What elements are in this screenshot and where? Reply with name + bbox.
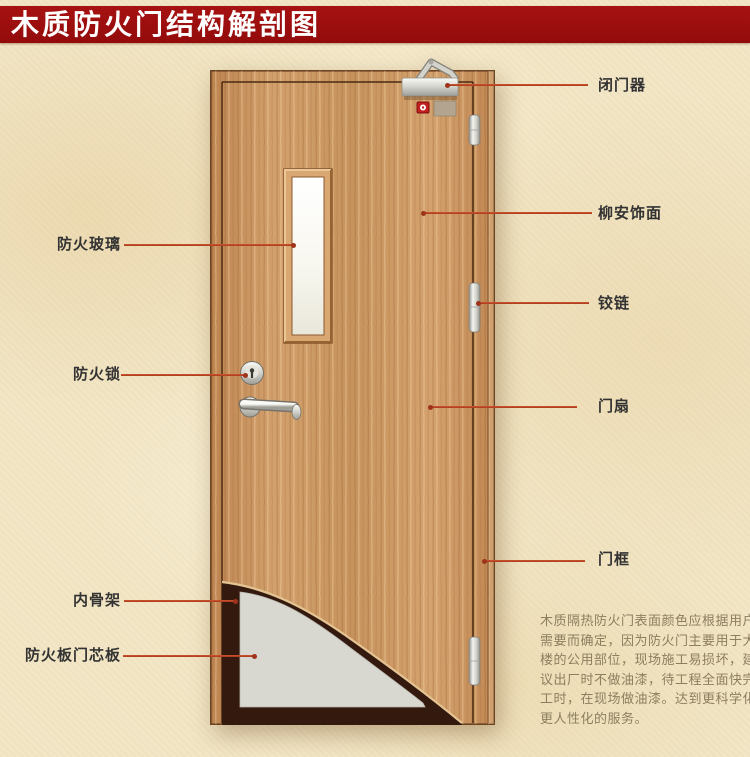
pointer-line-veneer (423, 212, 592, 214)
description-line: 更人性化的服务。 (540, 709, 740, 729)
description-text: 木质隔热防火门表面颜色应根据用户 需要而确定，因为防火门主要用于大 楼的公用部位… (540, 611, 740, 728)
pointer-dot (243, 373, 248, 378)
pointer-line-door-frame (484, 560, 585, 562)
pointer-dot (482, 559, 487, 564)
label-fire-lock: 防火锁 (73, 366, 121, 384)
page-title: 木质防火门结构解剖图 (0, 6, 750, 43)
description-line: 工时，在现场做油漆。达到更科学化 (540, 689, 740, 709)
door-closer-illustration (402, 60, 458, 100)
title-banner: 木质防火门结构解剖图 (0, 6, 750, 43)
pointer-line-inner-frame (124, 600, 236, 602)
label-core-board: 防火板门芯板 (25, 647, 121, 665)
pointer-dot (476, 301, 481, 306)
pointer-dot (428, 405, 433, 410)
description-line: 木质隔热防火门表面颜色应根据用户 (540, 611, 740, 631)
label-inner-frame: 内骨架 (73, 592, 121, 610)
pointer-line-fire-lock (121, 374, 246, 376)
pointer-line-core-board (123, 655, 255, 657)
pointer-dot (291, 243, 296, 248)
description-line: 楼的公用部位，现场施工易损坏，建 (540, 650, 740, 670)
fire-glass-window (284, 169, 332, 343)
description-line: 需要而确定，因为防火门主要用于大 (540, 631, 740, 651)
door-svg (210, 55, 495, 725)
label-door-leaf: 门扇 (598, 398, 630, 416)
hinge-middle-icon (469, 283, 480, 332)
label-fire-glass: 防火玻璃 (57, 236, 121, 254)
pointer-dot (233, 599, 238, 604)
label-veneer: 柳安饰面 (598, 205, 662, 223)
pointer-line-door-closer (447, 84, 588, 86)
alarm-indicator-icon (417, 102, 429, 113)
closer-plate (434, 101, 456, 116)
label-door-frame: 门框 (598, 551, 630, 569)
pointer-dot (421, 211, 426, 216)
pointer-line-hinge (478, 302, 589, 304)
pointer-dot (252, 654, 257, 659)
label-door-closer: 闭门器 (598, 77, 646, 95)
pointer-line-door-leaf (430, 406, 577, 408)
description-line: 议出厂时不做油漆，待工程全面快完 (540, 670, 740, 690)
door-illustration (210, 55, 495, 725)
pointer-line-fire-glass (124, 244, 294, 246)
pointer-dot (445, 83, 450, 88)
label-hinge: 铰链 (598, 295, 630, 313)
